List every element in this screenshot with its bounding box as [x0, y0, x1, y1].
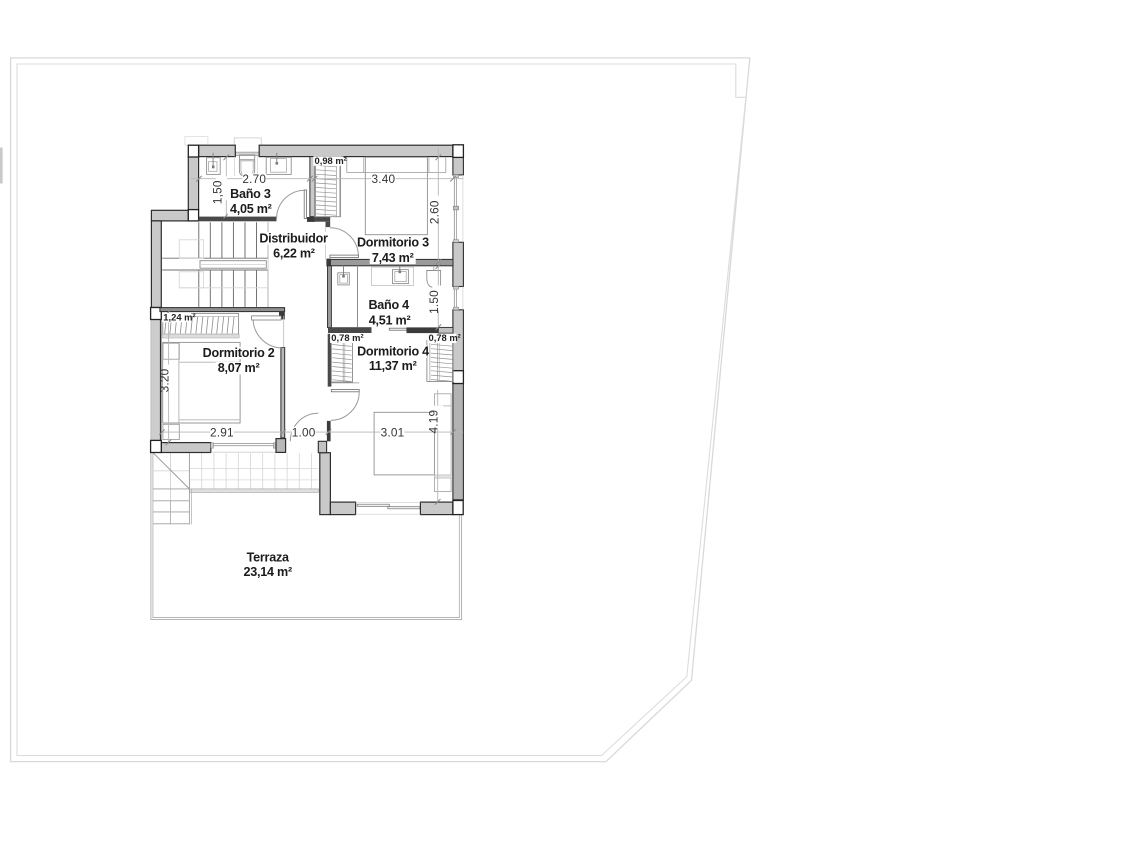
svg-text:1.00: 1.00	[292, 425, 316, 439]
svg-text:2.60: 2.60	[428, 200, 442, 224]
svg-text:2.70: 2.70	[242, 172, 266, 186]
svg-text:0,78 m²: 0,78 m²	[429, 332, 461, 343]
svg-text:3.40: 3.40	[372, 172, 396, 186]
svg-text:Dormitorio 3: Dormitorio 3	[357, 236, 429, 250]
svg-text:7,43 m²: 7,43 m²	[372, 251, 414, 265]
svg-text:1,24 m²: 1,24 m²	[163, 312, 195, 323]
svg-text:8,07 m²: 8,07 m²	[218, 361, 260, 375]
svg-text:1.50: 1.50	[427, 290, 441, 314]
svg-text:0,78 m²: 0,78 m²	[331, 332, 363, 343]
svg-text:23,14 m²: 23,14 m²	[243, 565, 291, 579]
svg-text:Dormitorio 2: Dormitorio 2	[203, 346, 275, 360]
svg-text:4.19: 4.19	[427, 410, 441, 434]
svg-text:Terraza: Terraza	[247, 551, 290, 565]
svg-text:6,22 m²: 6,22 m²	[273, 246, 315, 260]
svg-text:2.91: 2.91	[210, 425, 234, 439]
svg-text:Dormitorio 4: Dormitorio 4	[357, 344, 429, 358]
svg-text:4,05 m²: 4,05 m²	[230, 202, 272, 216]
svg-text:3.20: 3.20	[158, 368, 172, 392]
svg-text:Distribuidor: Distribuidor	[259, 231, 328, 245]
svg-text:4,51 m²: 4,51 m²	[369, 313, 411, 327]
svg-text:Baño 4: Baño 4	[368, 298, 409, 312]
svg-text:11,37 m²: 11,37 m²	[369, 359, 417, 373]
svg-text:1,50: 1,50	[210, 180, 224, 204]
svg-text:3.01: 3.01	[381, 425, 405, 439]
svg-text:0,98 m²: 0,98 m²	[315, 155, 347, 166]
svg-text:Baño 3: Baño 3	[230, 187, 271, 201]
